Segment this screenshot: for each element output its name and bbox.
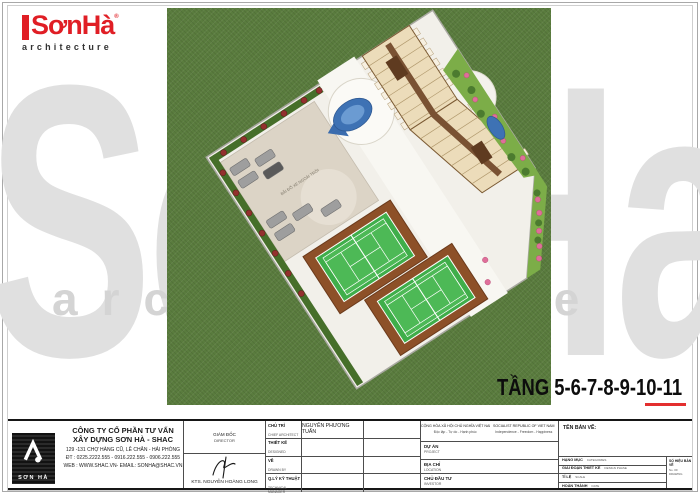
- investor-label-en: INVESTOR: [424, 482, 558, 486]
- company-logo-text: SƠN HÀ: [18, 475, 49, 481]
- company-address: 129 -131 CHỢ HÀNG CŨ, LÊ CHÂN - HẢI PHÒN…: [60, 447, 186, 453]
- location-label-en: LOCATION: [424, 468, 558, 472]
- project-label-vi: DỰ ÁN: [424, 444, 558, 449]
- company-name-line1: CÔNG TY CỔ PHẦN TƯ VẤN: [60, 426, 186, 435]
- staff-row-designed: THIẾT KẾ DESIGNED: [266, 439, 420, 457]
- drawing-row-scale: TỈ LỆ SCALE: [559, 474, 666, 483]
- logo-brand-text: SơnHà: [31, 12, 114, 39]
- drawing-row-label-vi: HẠNG MỤC: [562, 458, 583, 462]
- director-label-vi: GIÁM ĐỐC: [213, 432, 236, 437]
- staff-value: [302, 474, 364, 492]
- drawing-row-label-vi: HOÀN THÀNH: [562, 484, 588, 488]
- company-phone: ĐT : 0225.2222.555 - 0916.222.555 - 0906…: [60, 455, 186, 461]
- project-row: DỰ ÁN PROJECT: [421, 442, 558, 460]
- company-web: WEB : WWW.SHAC.VN- EMAIL: SONHA@SHAC.VN: [60, 463, 186, 469]
- director-cell: GIÁM ĐỐC DIRECTOR KTS. NGUYỄN HOÀNG LONG: [183, 421, 266, 488]
- site-plan: BÃI ĐỖ XE NGOÀI TRỜI: [167, 8, 551, 405]
- location-row: ĐỊA CHỈ LOCATION: [421, 460, 558, 474]
- republic-en: SOCIALIST REPUBLIC OF VIET NAM Independe…: [490, 421, 559, 441]
- staff-label-en: CHIEF ARCHITECT: [268, 433, 301, 437]
- drawing-row-phase: GIAI ĐOẠN THIẾT KẾ DESIGN PHASE: [559, 466, 666, 475]
- drawing-number-label-vi: SỐ HIỆU BẢN VẼ: [669, 459, 692, 467]
- staff-label-vi: CHỦ TRÌ: [268, 423, 301, 428]
- staff-row-drawn: VẼ DRAWN BY: [266, 457, 420, 475]
- registered-mark: ®: [114, 14, 118, 20]
- director-label-en: DIRECTOR: [214, 438, 235, 443]
- staff-label-vi: VẼ: [268, 458, 301, 463]
- staff-row-technical: Q.LÝ KỸ THUẬT TECHNICAL MANAGER: [266, 474, 420, 492]
- company-info: CÔNG TY CỔ PHẦN TƯ VẤN XÂY DỰNG SƠN HÀ -…: [60, 426, 186, 469]
- logo-tagline: architecture: [22, 42, 119, 52]
- staff-label-en: DESIGNED: [268, 450, 301, 454]
- location-label-vi: ĐỊA CHỈ: [424, 462, 558, 467]
- republic-cell: CỘNG HÒA XÃ HỘI CHỦ NGHĨA VIỆT NAM Độc l…: [420, 421, 558, 488]
- logo-bar-icon: [22, 15, 29, 40]
- staff-value: NGUYỄN PHƯƠNG TUẤN: [302, 421, 364, 438]
- staff-row-chief: CHỦ TRÌ CHIEF ARCHITECT NGUYỄN PHƯƠNG TU…: [266, 421, 420, 439]
- drawing-meta-rows: HẠNG MỤC CATEGORIES GIAI ĐOẠN THIẾT KẾ D…: [559, 457, 666, 488]
- staff-table: CHỦ TRÌ CHIEF ARCHITECT NGUYỄN PHƯƠNG TU…: [266, 421, 420, 488]
- staff-label-vi: Q.LÝ KỸ THUẬT: [268, 476, 301, 481]
- title-block: SƠN HÀ CÔNG TY CỔ PHẦN TƯ VẤN XÂY DỰNG S…: [8, 419, 692, 490]
- republic-vi: CỘNG HÒA XÃ HỘI CHỦ NGHĨA VIỆT NAM Độc l…: [421, 421, 490, 441]
- drawing-cell: TÊN BẢN VẼ: HẠNG MỤC CATEGORIES GIAI ĐOẠ…: [558, 421, 692, 488]
- floor-label-underline: [645, 403, 686, 406]
- republic-line2-vi: Độc lập - Tự do - Hạnh phúc: [421, 430, 490, 434]
- compass-logo-icon: [19, 438, 47, 466]
- investor-label-vi: CHỦ ĐẦU TƯ: [424, 476, 558, 481]
- project-label-en: PROJECT: [424, 450, 558, 454]
- drawing-row-date: HOÀN THÀNH DATE: [559, 483, 666, 492]
- sonha-logo: SơnHà ® architecture: [22, 12, 119, 52]
- republic-line2-en: Independence - Freedom - Happiness: [490, 430, 559, 434]
- drawing-row-label-en: CATEGORIES: [587, 458, 606, 462]
- republic-line1-vi: CỘNG HÒA XÃ HỘI CHỦ NGHĨA VIỆT NAM: [421, 424, 490, 428]
- drawing-number-box: SỐ HIỆU BẢN VẼ No. OF DRAWING: [666, 457, 692, 488]
- staff-value: [302, 457, 364, 474]
- drawing-row-label-en: DATE: [592, 484, 600, 488]
- republic-line1-en: SOCIALIST REPUBLIC OF VIET NAM: [490, 424, 559, 428]
- drawing-number-label-en: No. OF DRAWING: [669, 468, 692, 476]
- drawing-row-label-en: SCALE: [575, 475, 585, 479]
- drawing-sheet: SonHa architecture SơnHà ® architecture: [0, 0, 700, 494]
- director-name: KTS. NGUYỄN HOÀNG LONG: [184, 480, 265, 490]
- drawing-row-category: HẠNG MỤC CATEGORIES: [559, 457, 666, 466]
- staff-value: [302, 439, 364, 456]
- site-plan-svg: BÃI ĐỖ XE NGOÀI TRỜI: [167, 8, 551, 405]
- drawing-row-label-vi: GIAI ĐOẠN THIẾT KẾ: [562, 466, 600, 470]
- drawing-row-label-en: DESIGN PHASE: [604, 466, 627, 470]
- drawing-title-label: TÊN BẢN VẼ:: [559, 421, 692, 457]
- staff-label-en: TECHNICAL MANAGER: [268, 486, 301, 494]
- director-signature: [184, 454, 265, 480]
- floor-label-text: TẦNG 5-6-7-8-9-10-11: [497, 374, 682, 400]
- signature-icon: [207, 455, 243, 479]
- floor-label: TẦNG 5-6-7-8-9-10-11: [497, 374, 682, 401]
- investor-row: CHỦ ĐẦU TƯ INVESTOR: [421, 474, 558, 491]
- staff-label-en: DRAWN BY: [268, 468, 301, 472]
- company-name-line2: XÂY DỰNG SƠN HÀ - SHAC: [60, 435, 186, 444]
- drawing-row-label-vi: TỈ LỆ: [562, 475, 571, 479]
- staff-label-vi: THIẾT KẾ: [268, 440, 301, 445]
- company-logo-box: SƠN HÀ: [12, 433, 55, 484]
